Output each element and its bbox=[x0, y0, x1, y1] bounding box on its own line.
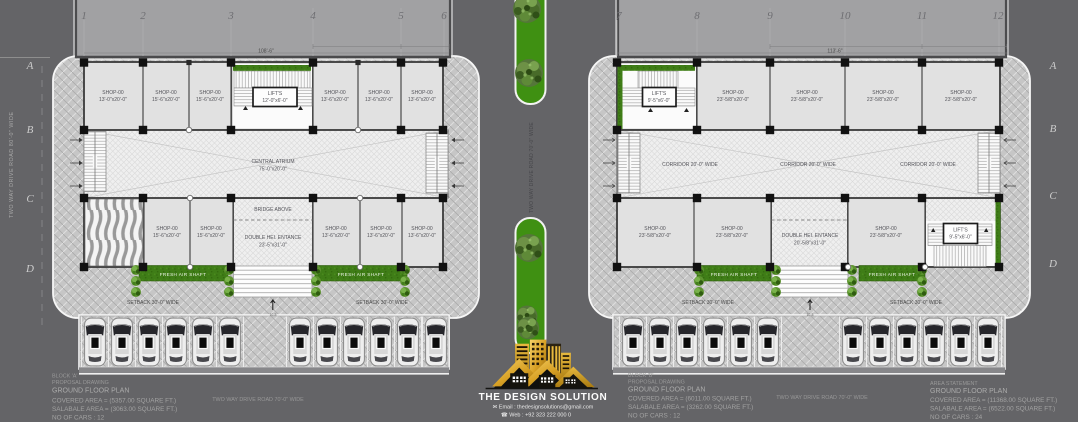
svg-text:✉ Email : thedesignsolutions@g: ✉ Email : thedesignsolutions@gmail.com bbox=[493, 405, 594, 411]
svg-text:THE DESIGN SOLUTION: THE DESIGN SOLUTION bbox=[479, 392, 608, 403]
svg-text:FRESH AIR SHAFT: FRESH AIR SHAFT bbox=[160, 272, 207, 277]
svg-text:5: 5 bbox=[398, 10, 404, 22]
svg-text:BLOCK 'A': BLOCK 'A' bbox=[52, 374, 77, 380]
svg-text:10-5: 10-5 bbox=[806, 313, 813, 317]
svg-text:SHOP-0013'-6"x20'-0": SHOP-0013'-6"x20'-0" bbox=[365, 90, 393, 103]
svg-text:PROPOSAL DRAWING: PROPOSAL DRAWING bbox=[52, 380, 109, 386]
svg-text:SHOP-0015'-6"x20'-0": SHOP-0015'-6"x20'-0" bbox=[196, 90, 224, 103]
svg-text:COVERED AREA = (6011.00 SQUARE: COVERED AREA = (6011.00 SQUARE FT.) bbox=[628, 396, 752, 403]
svg-text:PROPOSAL DRAWING: PROPOSAL DRAWING bbox=[628, 380, 685, 386]
svg-text:SHOP-0013'-6"x20'-0": SHOP-0013'-6"x20'-0" bbox=[322, 226, 350, 239]
svg-text:108'-6": 108'-6" bbox=[258, 49, 274, 55]
svg-text:NO OF CARS : 24: NO OF CARS : 24 bbox=[930, 414, 983, 421]
svg-text:SHOP-0015'-6"x20'-0": SHOP-0015'-6"x20'-0" bbox=[197, 226, 225, 239]
svg-text:COVERED AREA = (5357.00 SQUARE: COVERED AREA = (5357.00 SQUARE FT.) bbox=[52, 398, 176, 405]
svg-text:B: B bbox=[27, 124, 34, 136]
svg-text:FRESH AIR SHAFT: FRESH AIR SHAFT bbox=[338, 272, 385, 277]
svg-text:GROUND FLOOR PLAN: GROUND FLOOR PLAN bbox=[52, 388, 129, 395]
svg-text:6: 6 bbox=[441, 10, 447, 22]
svg-text:SHOP-0015'-6"x20'-0": SHOP-0015'-6"x20'-0" bbox=[152, 90, 180, 103]
svg-text:113'-6": 113'-6" bbox=[827, 49, 842, 55]
svg-text:☎ Web : +92 323 222 000 0: ☎ Web : +92 323 222 000 0 bbox=[501, 412, 571, 419]
svg-text:FRESH AIR SHAFT: FRESH AIR SHAFT bbox=[869, 272, 916, 277]
svg-text:10-5: 10-5 bbox=[269, 313, 276, 317]
svg-text:D: D bbox=[25, 263, 34, 275]
svg-text:NO OF CARS : 12: NO OF CARS : 12 bbox=[52, 415, 105, 422]
svg-text:NO OF CARS : 12: NO OF CARS : 12 bbox=[628, 413, 681, 420]
svg-text:SHOP-0013'-6"x20'-0": SHOP-0013'-6"x20'-0" bbox=[321, 90, 349, 103]
svg-text:3: 3 bbox=[227, 10, 234, 22]
svg-text:SETBACK 30'-0" WIDE: SETBACK 30'-0" WIDE bbox=[356, 300, 409, 306]
svg-text:GROUND FLOOR PLAN: GROUND FLOOR PLAN bbox=[930, 388, 1007, 395]
svg-text:C: C bbox=[1049, 190, 1057, 202]
svg-text:CORRIDOR 20'-0" WIDE: CORRIDOR 20'-0" WIDE bbox=[780, 162, 836, 168]
svg-text:10: 10 bbox=[840, 10, 852, 22]
svg-text:BRIDGE ABOVE: BRIDGE ABOVE bbox=[254, 207, 292, 213]
svg-text:SHOP-0013'-6"x20'-0": SHOP-0013'-6"x20'-0" bbox=[408, 226, 436, 239]
svg-text:4: 4 bbox=[310, 10, 316, 22]
svg-text:A: A bbox=[26, 60, 34, 72]
svg-text:SHOP-0013'-6"x20'-0": SHOP-0013'-6"x20'-0" bbox=[367, 226, 395, 239]
svg-text:FRESH AIR SHAFT: FRESH AIR SHAFT bbox=[711, 272, 758, 277]
svg-text:SHOP-0013'-0"x20'-0": SHOP-0013'-0"x20'-0" bbox=[99, 90, 127, 103]
svg-text:2: 2 bbox=[140, 10, 146, 22]
svg-text:SALABALE AREA = (6522.00 SQUAR: SALABALE AREA = (6522.00 SQUARE FT.) bbox=[930, 406, 1055, 413]
svg-text:SETBACK 30'-0" WIDE: SETBACK 30'-0" WIDE bbox=[682, 300, 735, 306]
svg-text:GROUND FLOOR PLAN: GROUND FLOOR PLAN bbox=[628, 387, 705, 394]
svg-text:8: 8 bbox=[694, 10, 700, 22]
svg-text:SETBACK 30'-0" WIDE: SETBACK 30'-0" WIDE bbox=[890, 300, 943, 306]
svg-text:AREA STATEMENT: AREA STATEMENT bbox=[930, 381, 978, 387]
svg-text:TWO WAY DRIVE ROAD 80'-0" WIDE: TWO WAY DRIVE ROAD 80'-0" WIDE bbox=[9, 112, 15, 219]
svg-text:TWO WAY DRIVE ROAD 70'-0" WIDE: TWO WAY DRIVE ROAD 70'-0" WIDE bbox=[529, 122, 535, 213]
svg-text:SHOP-0015'-6"x20'-0": SHOP-0015'-6"x20'-0" bbox=[153, 226, 181, 239]
svg-text:7: 7 bbox=[616, 10, 622, 22]
svg-text:TWO WAY DRIVE ROAD 70'-0" WIDE: TWO WAY DRIVE ROAD 70'-0" WIDE bbox=[776, 395, 868, 401]
svg-text:BLOCK 'B': BLOCK 'B' bbox=[628, 373, 653, 379]
svg-text:12: 12 bbox=[993, 10, 1005, 22]
svg-text:CORRIDOR 20'-0" WIDE: CORRIDOR 20'-0" WIDE bbox=[662, 162, 718, 168]
svg-text:TWO WAY DRIVE ROAD 70'-0" WIDE: TWO WAY DRIVE ROAD 70'-0" WIDE bbox=[212, 397, 304, 403]
svg-text:SHOP-0013'-6"x20'-0": SHOP-0013'-6"x20'-0" bbox=[408, 90, 436, 103]
svg-text:11: 11 bbox=[917, 10, 927, 22]
svg-text:C: C bbox=[26, 193, 34, 205]
svg-text:A: A bbox=[1049, 60, 1057, 72]
svg-text:D: D bbox=[1048, 258, 1057, 270]
svg-text:SALABALE AREA = (3262.00 SQUAR: SALABALE AREA = (3262.00 SQUARE FT.) bbox=[628, 404, 753, 411]
svg-text:COVERED AREA = (11368.00 SQUAR: COVERED AREA = (11368.00 SQUARE FT.) bbox=[930, 397, 1057, 404]
svg-text:SALABALE AREA = (3063.00 SQUAR: SALABALE AREA = (3063.00 SQUARE FT.) bbox=[52, 406, 177, 413]
svg-text:B: B bbox=[1050, 123, 1057, 135]
svg-text:9: 9 bbox=[767, 10, 773, 22]
svg-text:CORRIDOR 20'-0" WIDE: CORRIDOR 20'-0" WIDE bbox=[900, 162, 956, 168]
svg-text:1: 1 bbox=[81, 10, 87, 22]
svg-text:SETBACK 30'-0" WIDE: SETBACK 30'-0" WIDE bbox=[127, 300, 180, 306]
